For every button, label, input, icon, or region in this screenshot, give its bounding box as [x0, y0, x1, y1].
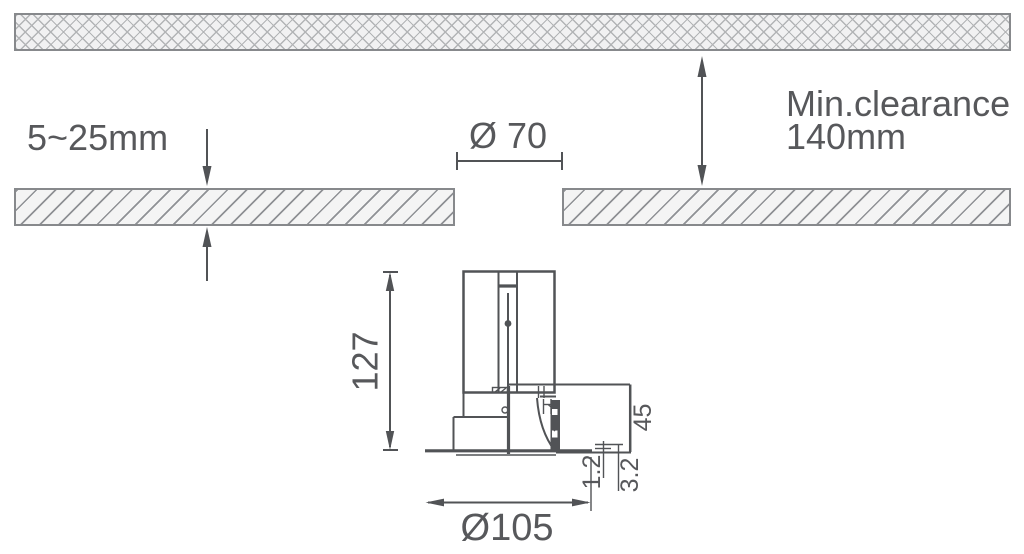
trim-thickness-label: 1.2	[578, 455, 606, 490]
driver-height-label: 45	[629, 404, 657, 432]
arrow-down-icon	[203, 166, 212, 186]
min-clearance-arrow	[698, 56, 707, 186]
trim-lip-dimensions: 1.2 3.2	[578, 441, 644, 492]
height-dimension-label: 127	[345, 331, 386, 391]
pivot-dot	[505, 320, 512, 327]
trim-protrusion-label: 3.2	[616, 458, 644, 493]
height-dimension-127: 127	[345, 272, 399, 450]
dimension-drawing: 127 45 1.2 3.2 Ø105	[0, 0, 1024, 554]
arrow-down-icon	[698, 165, 707, 186]
fixture-section	[425, 272, 631, 456]
arrow-right-icon	[572, 499, 591, 507]
panel-thickness-arrows	[203, 129, 212, 281]
arrow-up-icon	[203, 227, 212, 247]
cutout-dimension	[457, 152, 562, 170]
arrow-down-icon	[386, 431, 394, 450]
arrow-up-icon	[386, 272, 394, 291]
trim-diameter-label: Ø105	[461, 507, 554, 549]
installation-diagram: 5~25mm Ø 70 Min.clearance 140mm	[0, 0, 1024, 554]
arrow-left-icon	[426, 499, 445, 507]
trim-diameter-dimension: Ø105	[426, 457, 592, 549]
arrow-up-icon	[698, 56, 707, 77]
